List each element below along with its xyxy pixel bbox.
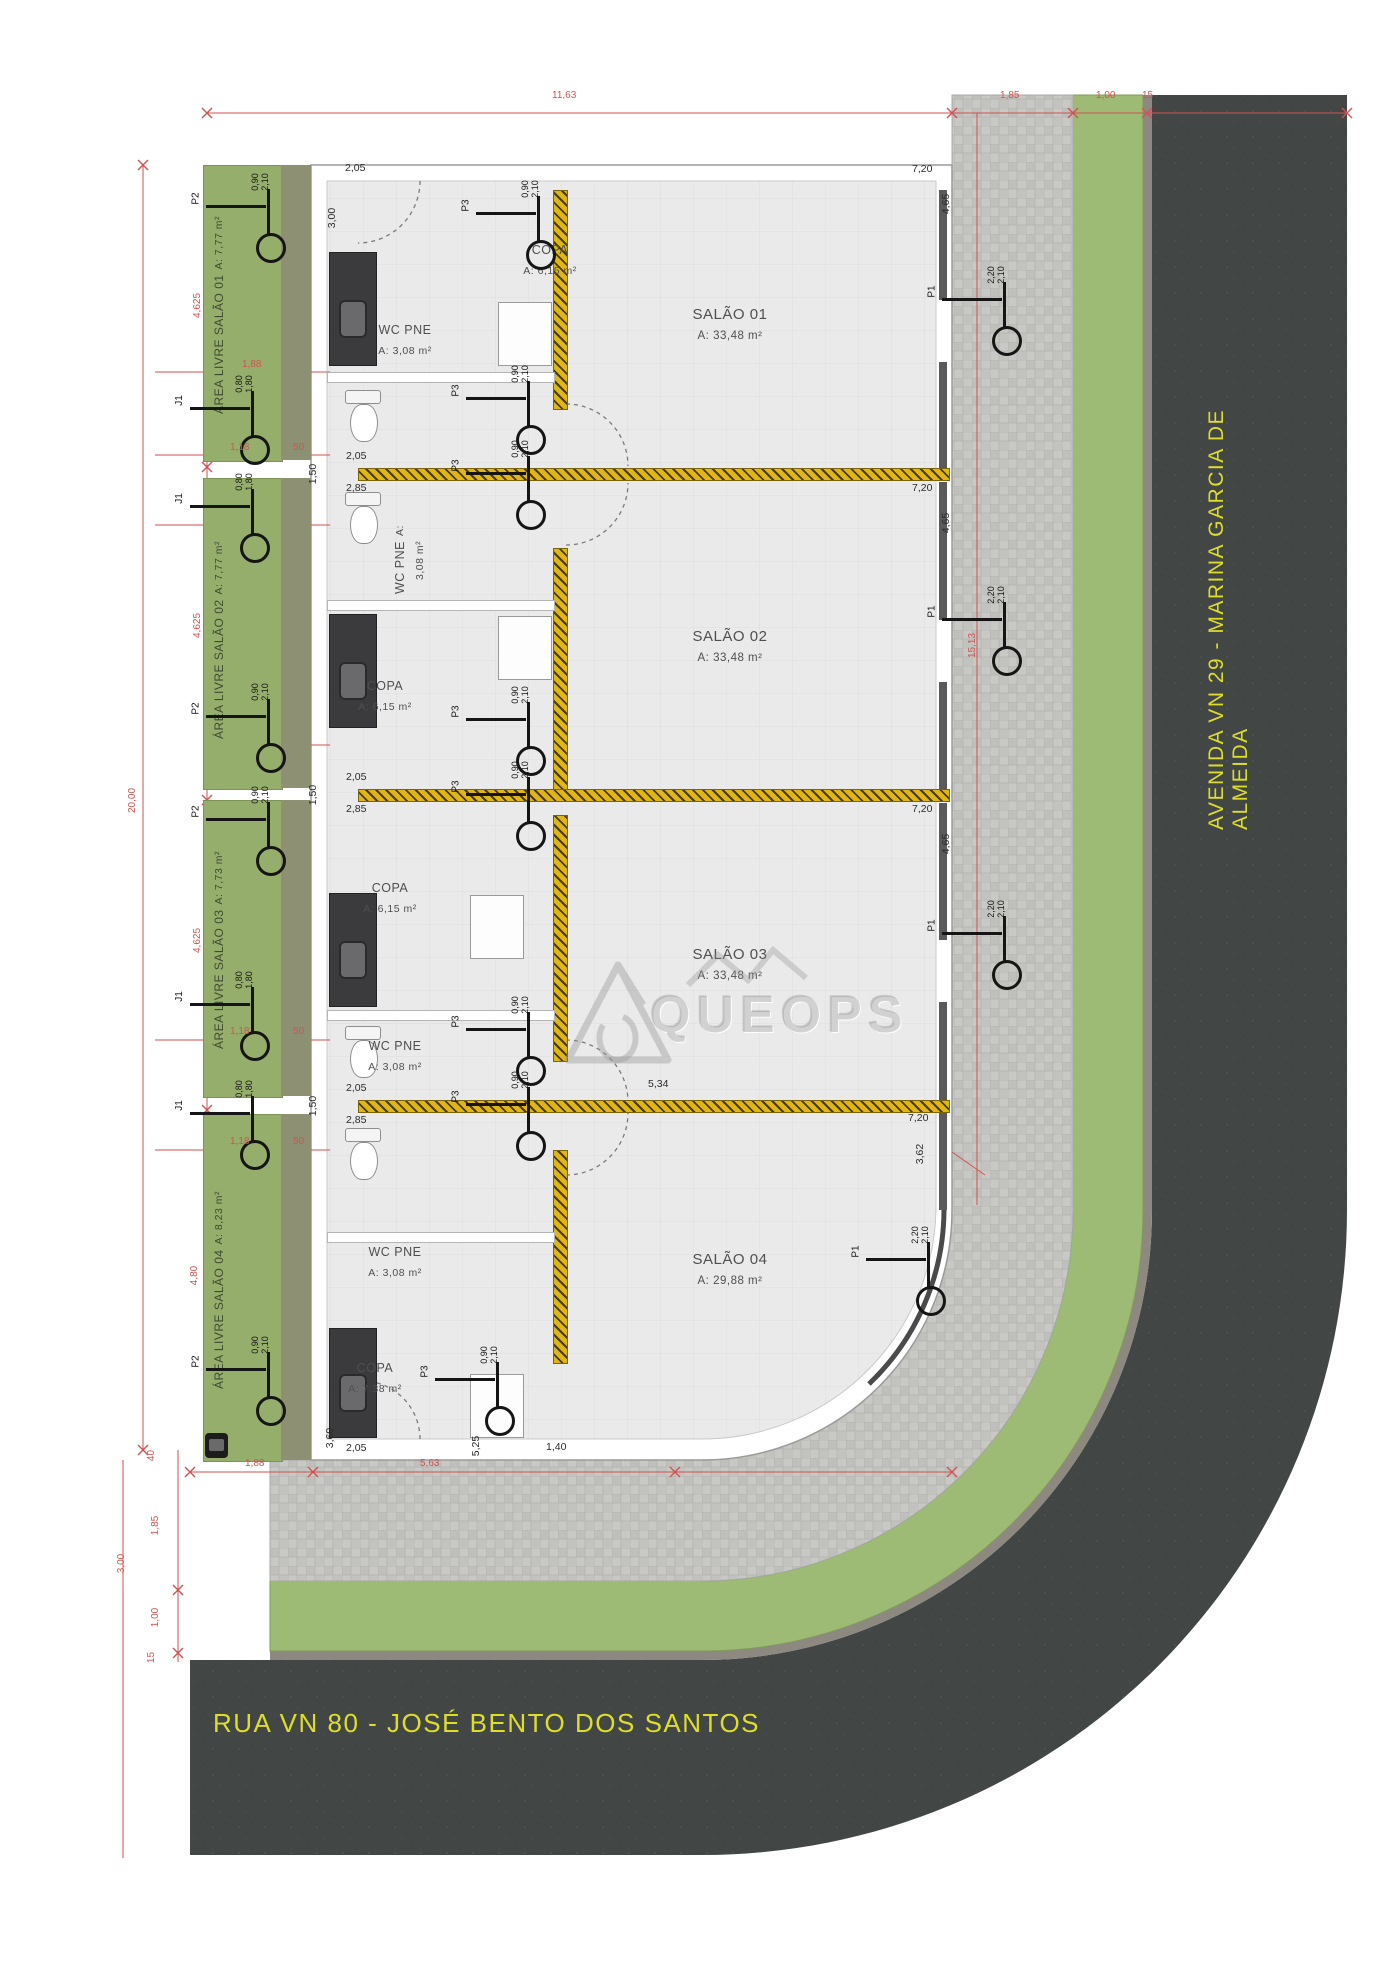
floor-plan-canvas: ÁREA LIVRE SALÃO 01 A: 7,77 m² ÁREA LIVR…: [0, 0, 1400, 1980]
dim-green-w-u1: 1,88: [242, 359, 261, 370]
dim-right-total: 15,13: [967, 633, 978, 658]
dim-div1-c: 1,50: [307, 464, 319, 484]
dim-j1-a-u4: 1,18: [230, 1136, 249, 1147]
glass-facade-u2b: [939, 682, 947, 789]
dim-unit-h-1: 4,625: [192, 293, 203, 318]
dim-copa-w-u1: 2,05: [345, 162, 365, 174]
dim-b205: 2,05: [346, 1442, 366, 1454]
dim-v40: 40: [146, 1450, 157, 1461]
salao-label-1: SALÃO 01A: 33,48 m²: [660, 305, 800, 345]
sage-strip-3: [281, 800, 311, 1096]
copa-label-3: COPAA: 6,15 m²: [350, 878, 430, 918]
dim-curve: 5,34: [648, 1078, 668, 1090]
dim-top-sidewalk: 1,85: [1000, 90, 1019, 101]
wc-label-4: WC PNEA: 3,08 m²: [350, 1242, 440, 1282]
car-icon: [205, 1433, 228, 1458]
dim-salao-w-u4: 7,20: [908, 1112, 928, 1124]
dim-v15: 15: [146, 1652, 157, 1663]
dim-unit-h-3: 4,625: [192, 928, 203, 953]
dim-v100: 1,00: [150, 1608, 161, 1627]
salao-label-2: SALÃO 02A: 33,48 m²: [660, 627, 800, 667]
toilet-bowl-u4: [350, 1142, 378, 1180]
toilet-tank-u4: [345, 1128, 381, 1142]
dim-left-total: 20,00: [127, 788, 138, 813]
dim-div3-c: 1,50: [307, 1096, 319, 1116]
dim-unit-h-2: 4,625: [192, 613, 203, 638]
dim-salao-w-u1: 7,20: [912, 163, 932, 175]
dim-unit-h-4: 4,80: [189, 1266, 200, 1285]
dim-bottom-b: 5,63: [420, 1458, 439, 1469]
sage-strip-1: [281, 165, 311, 460]
dim-b140: 1,40: [546, 1441, 566, 1453]
dim-top-green: 1,00: [1096, 90, 1115, 101]
dim-div3-b: 2,85: [346, 1114, 366, 1126]
glass-facade-u4a: [939, 1113, 947, 1210]
toilet-bowl-u2: [350, 506, 378, 544]
dim-div1-b: 2,85: [346, 482, 366, 494]
dim-salao-h-u1: 4,65: [940, 194, 952, 214]
dim-j1-a-u1: 1,18: [230, 442, 249, 453]
divider-wall-1: [358, 468, 950, 481]
core-wall-u1: [553, 190, 568, 410]
glass-facade-u3a: [939, 803, 947, 940]
dim-salao-h-u4: 3,62: [914, 1144, 926, 1164]
dim-j1-a-u3: 1,18: [230, 1026, 249, 1037]
copa-label-2: COPAA: 6,15 m²: [345, 676, 425, 716]
glass-facade-u1b: [939, 362, 947, 468]
core-wall-u2: [553, 548, 568, 790]
street-name-rua: RUA VN 80 - JOSÉ BENTO DOS SANTOS: [213, 1708, 760, 1739]
dim-top-curb: 15: [1142, 90, 1153, 101]
dim-salao-h-u2: 4,65: [940, 513, 952, 533]
dim-v300: 3,00: [116, 1554, 127, 1573]
dim-div1-a: 2,05: [346, 450, 366, 462]
toilet-bowl-u1: [350, 404, 378, 442]
dim-div2-c: 1,50: [307, 785, 319, 805]
dim-salao-w-u3: 7,20: [912, 803, 932, 815]
street-name-avenida: AVENIDA VN 29 - MARINA GARCIA DE ALMEIDA: [1205, 330, 1253, 830]
copa-wc-wall-u2: [327, 600, 555, 611]
wc-label-2: WC PNE A: 3,08 m²: [390, 525, 430, 595]
copa-sink-u3: [339, 941, 367, 979]
glass-facade-u2a: [939, 482, 947, 620]
divider-wall-2: [358, 789, 950, 802]
wc-label-1: WC PNEA: 3,08 m²: [360, 320, 450, 360]
toilet-tank-u1: [345, 390, 381, 404]
dim-b360: 3,60: [324, 1428, 336, 1448]
dim-div3-a: 2,05: [346, 1082, 366, 1094]
watermark-text: QUEOPS: [650, 985, 909, 1045]
dim-copa-h-u1: 3,00: [326, 208, 338, 228]
dim-j1-b-u1: 50: [293, 442, 304, 453]
toilet-tank-u2: [345, 492, 381, 506]
dim-bottom-a: 1,88: [245, 1458, 264, 1469]
glass-facade-u3b: [939, 1002, 947, 1100]
area-livre-label-2: ÁREA LIVRE SALÃO 02 A: 7,77 m²: [210, 540, 228, 740]
dim-salao-w-u2: 7,20: [912, 482, 932, 494]
area-livre-label-1: ÁREA LIVRE SALÃO 01 A: 7,77 m²: [210, 215, 228, 415]
dim-salao-h-u3: 4,65: [940, 834, 952, 854]
dim-v185: 1,85: [150, 1516, 161, 1535]
divider-wall-3: [358, 1100, 950, 1113]
dim-div2-a: 2,05: [346, 771, 366, 783]
area-livre-label-4: ÁREA LIVRE SALÃO 04 A: 8,23 m²: [210, 1180, 228, 1400]
appliance-u1: [498, 302, 552, 366]
dim-div2-b: 2,85: [346, 803, 366, 815]
area-livre-label-3: ÁREA LIVRE SALÃO 03 A: 7,73 m²: [210, 850, 228, 1050]
wc-label-3: WC PNEA: 3,08 m²: [350, 1036, 440, 1076]
appliance-u2: [498, 616, 552, 680]
dim-j1-b-u3: 50: [293, 1026, 304, 1037]
dim-b525: 5,25: [470, 1436, 482, 1456]
core-wall-u4: [553, 1150, 568, 1364]
dim-j1-b-u4: 50: [293, 1136, 304, 1147]
copa-label-4: COPAA: 7,38 m²: [335, 1358, 415, 1398]
salao-label-4: SALÃO 04A: 29,88 m²: [660, 1250, 800, 1290]
sage-strip-2: [281, 478, 311, 788]
dim-top-total: 11,63: [552, 90, 576, 101]
appliance-u3: [470, 895, 524, 959]
